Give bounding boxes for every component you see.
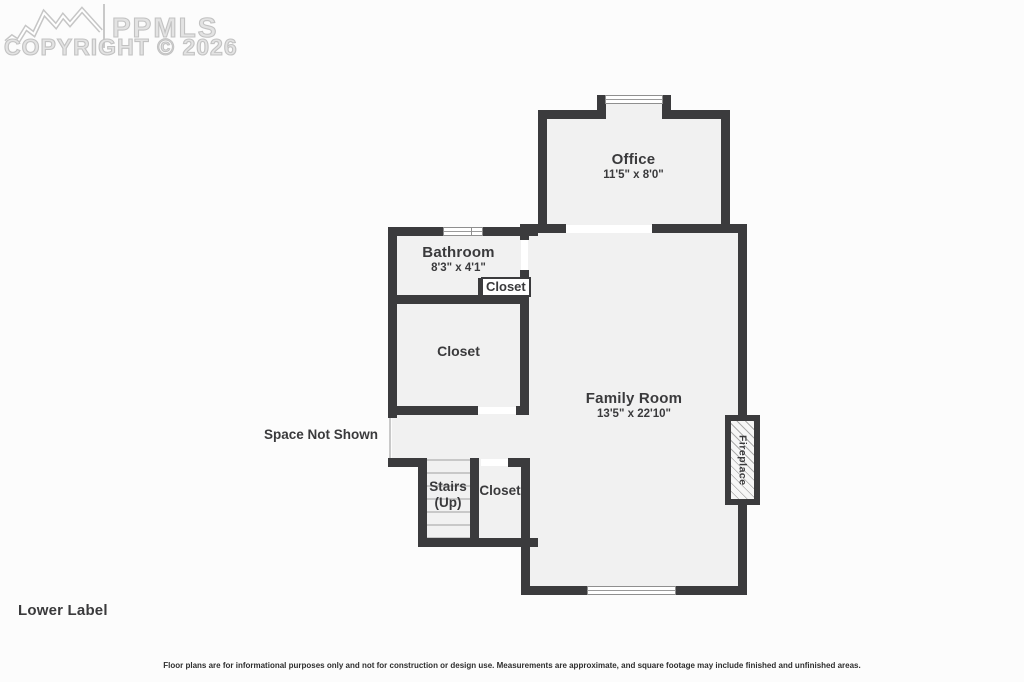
window-mullion xyxy=(471,228,472,235)
wall-segment xyxy=(483,227,538,236)
window xyxy=(605,95,663,104)
disclaimer-text: Floor plans are for informational purpos… xyxy=(0,661,1024,670)
floor-plan: Fireplace Office 11'5" x 8'0" Bathroom 8… xyxy=(0,0,1024,682)
closet-small-label: Closet xyxy=(481,277,531,297)
wall-segment xyxy=(538,110,601,119)
wall-segment xyxy=(676,586,747,595)
fireplace-hatch: Fireplace xyxy=(731,421,754,499)
wall-segment xyxy=(388,458,422,467)
room-opening xyxy=(566,225,652,233)
door-opening xyxy=(478,407,516,414)
wall-segment xyxy=(521,586,587,595)
fireplace-label: Fireplace xyxy=(737,435,749,486)
space-not-shown-label: Space Not Shown xyxy=(178,427,378,442)
wall-segment xyxy=(418,538,538,547)
window xyxy=(443,227,483,236)
open-wall-line xyxy=(389,418,391,458)
family-room-dims: 13'5" x 22'10" xyxy=(525,408,743,421)
wall-segment xyxy=(738,224,747,417)
bathroom-dims: 8'3" x 4'1" xyxy=(397,262,520,275)
wall-segment xyxy=(721,110,730,233)
door-opening xyxy=(481,459,508,466)
wall-segment xyxy=(738,503,747,595)
wall-segment xyxy=(652,224,747,233)
closet-lower-label: Closet xyxy=(470,483,530,499)
wall-segment xyxy=(388,227,397,418)
bathroom-name: Bathroom xyxy=(397,244,520,261)
office-dims: 11'5" x 8'0" xyxy=(547,169,720,182)
fireplace: Fireplace xyxy=(725,415,760,505)
wall-segment xyxy=(538,110,547,233)
wall-segment xyxy=(520,233,529,240)
window xyxy=(587,586,676,595)
family-room-label: Family Room 13'5" x 22'10" xyxy=(525,390,743,421)
bathroom-label: Bathroom 8'3" x 4'1" xyxy=(397,244,520,275)
wall-segment xyxy=(521,458,530,595)
office-name: Office xyxy=(547,151,720,168)
office-label: Office 11'5" x 8'0" xyxy=(547,151,720,182)
closet-large-label: Closet xyxy=(397,343,520,359)
family-room-name: Family Room xyxy=(525,390,743,407)
lower-label: Lower Label xyxy=(18,602,108,619)
wall-segment xyxy=(388,406,478,415)
door-opening xyxy=(521,240,528,270)
